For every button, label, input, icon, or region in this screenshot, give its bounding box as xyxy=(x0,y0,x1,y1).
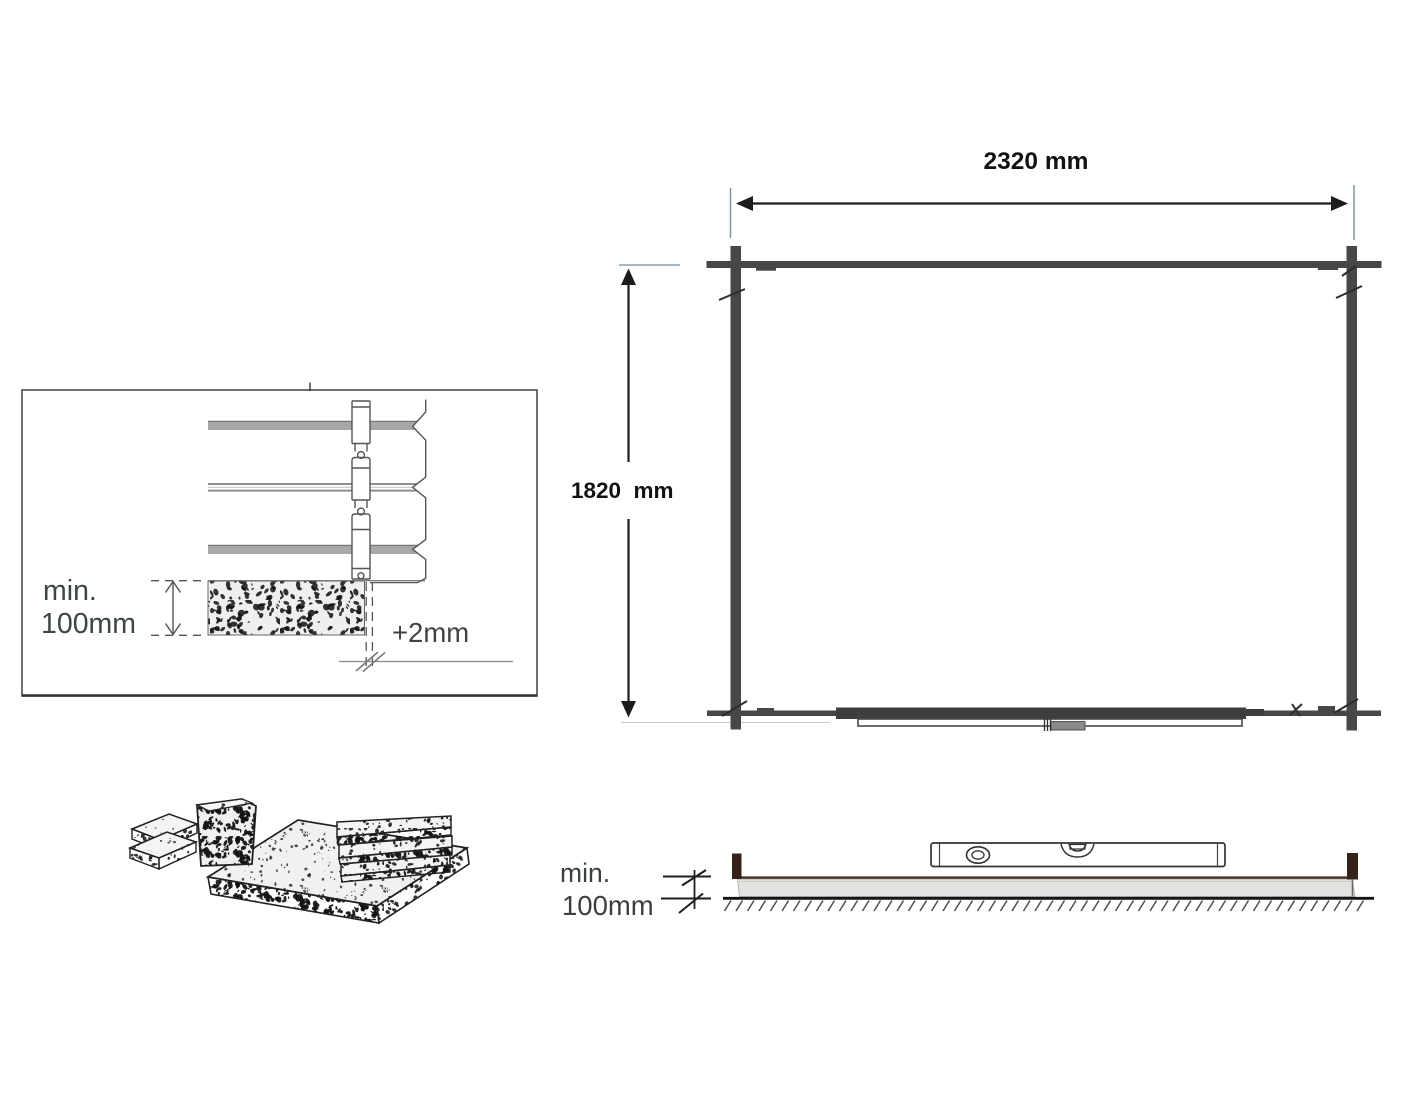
svg-text:+2mm: +2mm xyxy=(392,617,469,648)
svg-text:min.: min. xyxy=(560,858,610,888)
svg-text:2320 mm: 2320 mm xyxy=(984,148,1089,175)
svg-text:100mm: 100mm xyxy=(562,890,654,921)
svg-text:1820 mm: 1820 mm xyxy=(571,478,674,503)
svg-text:min.: min. xyxy=(43,575,97,607)
svg-text:100mm: 100mm xyxy=(41,608,136,640)
